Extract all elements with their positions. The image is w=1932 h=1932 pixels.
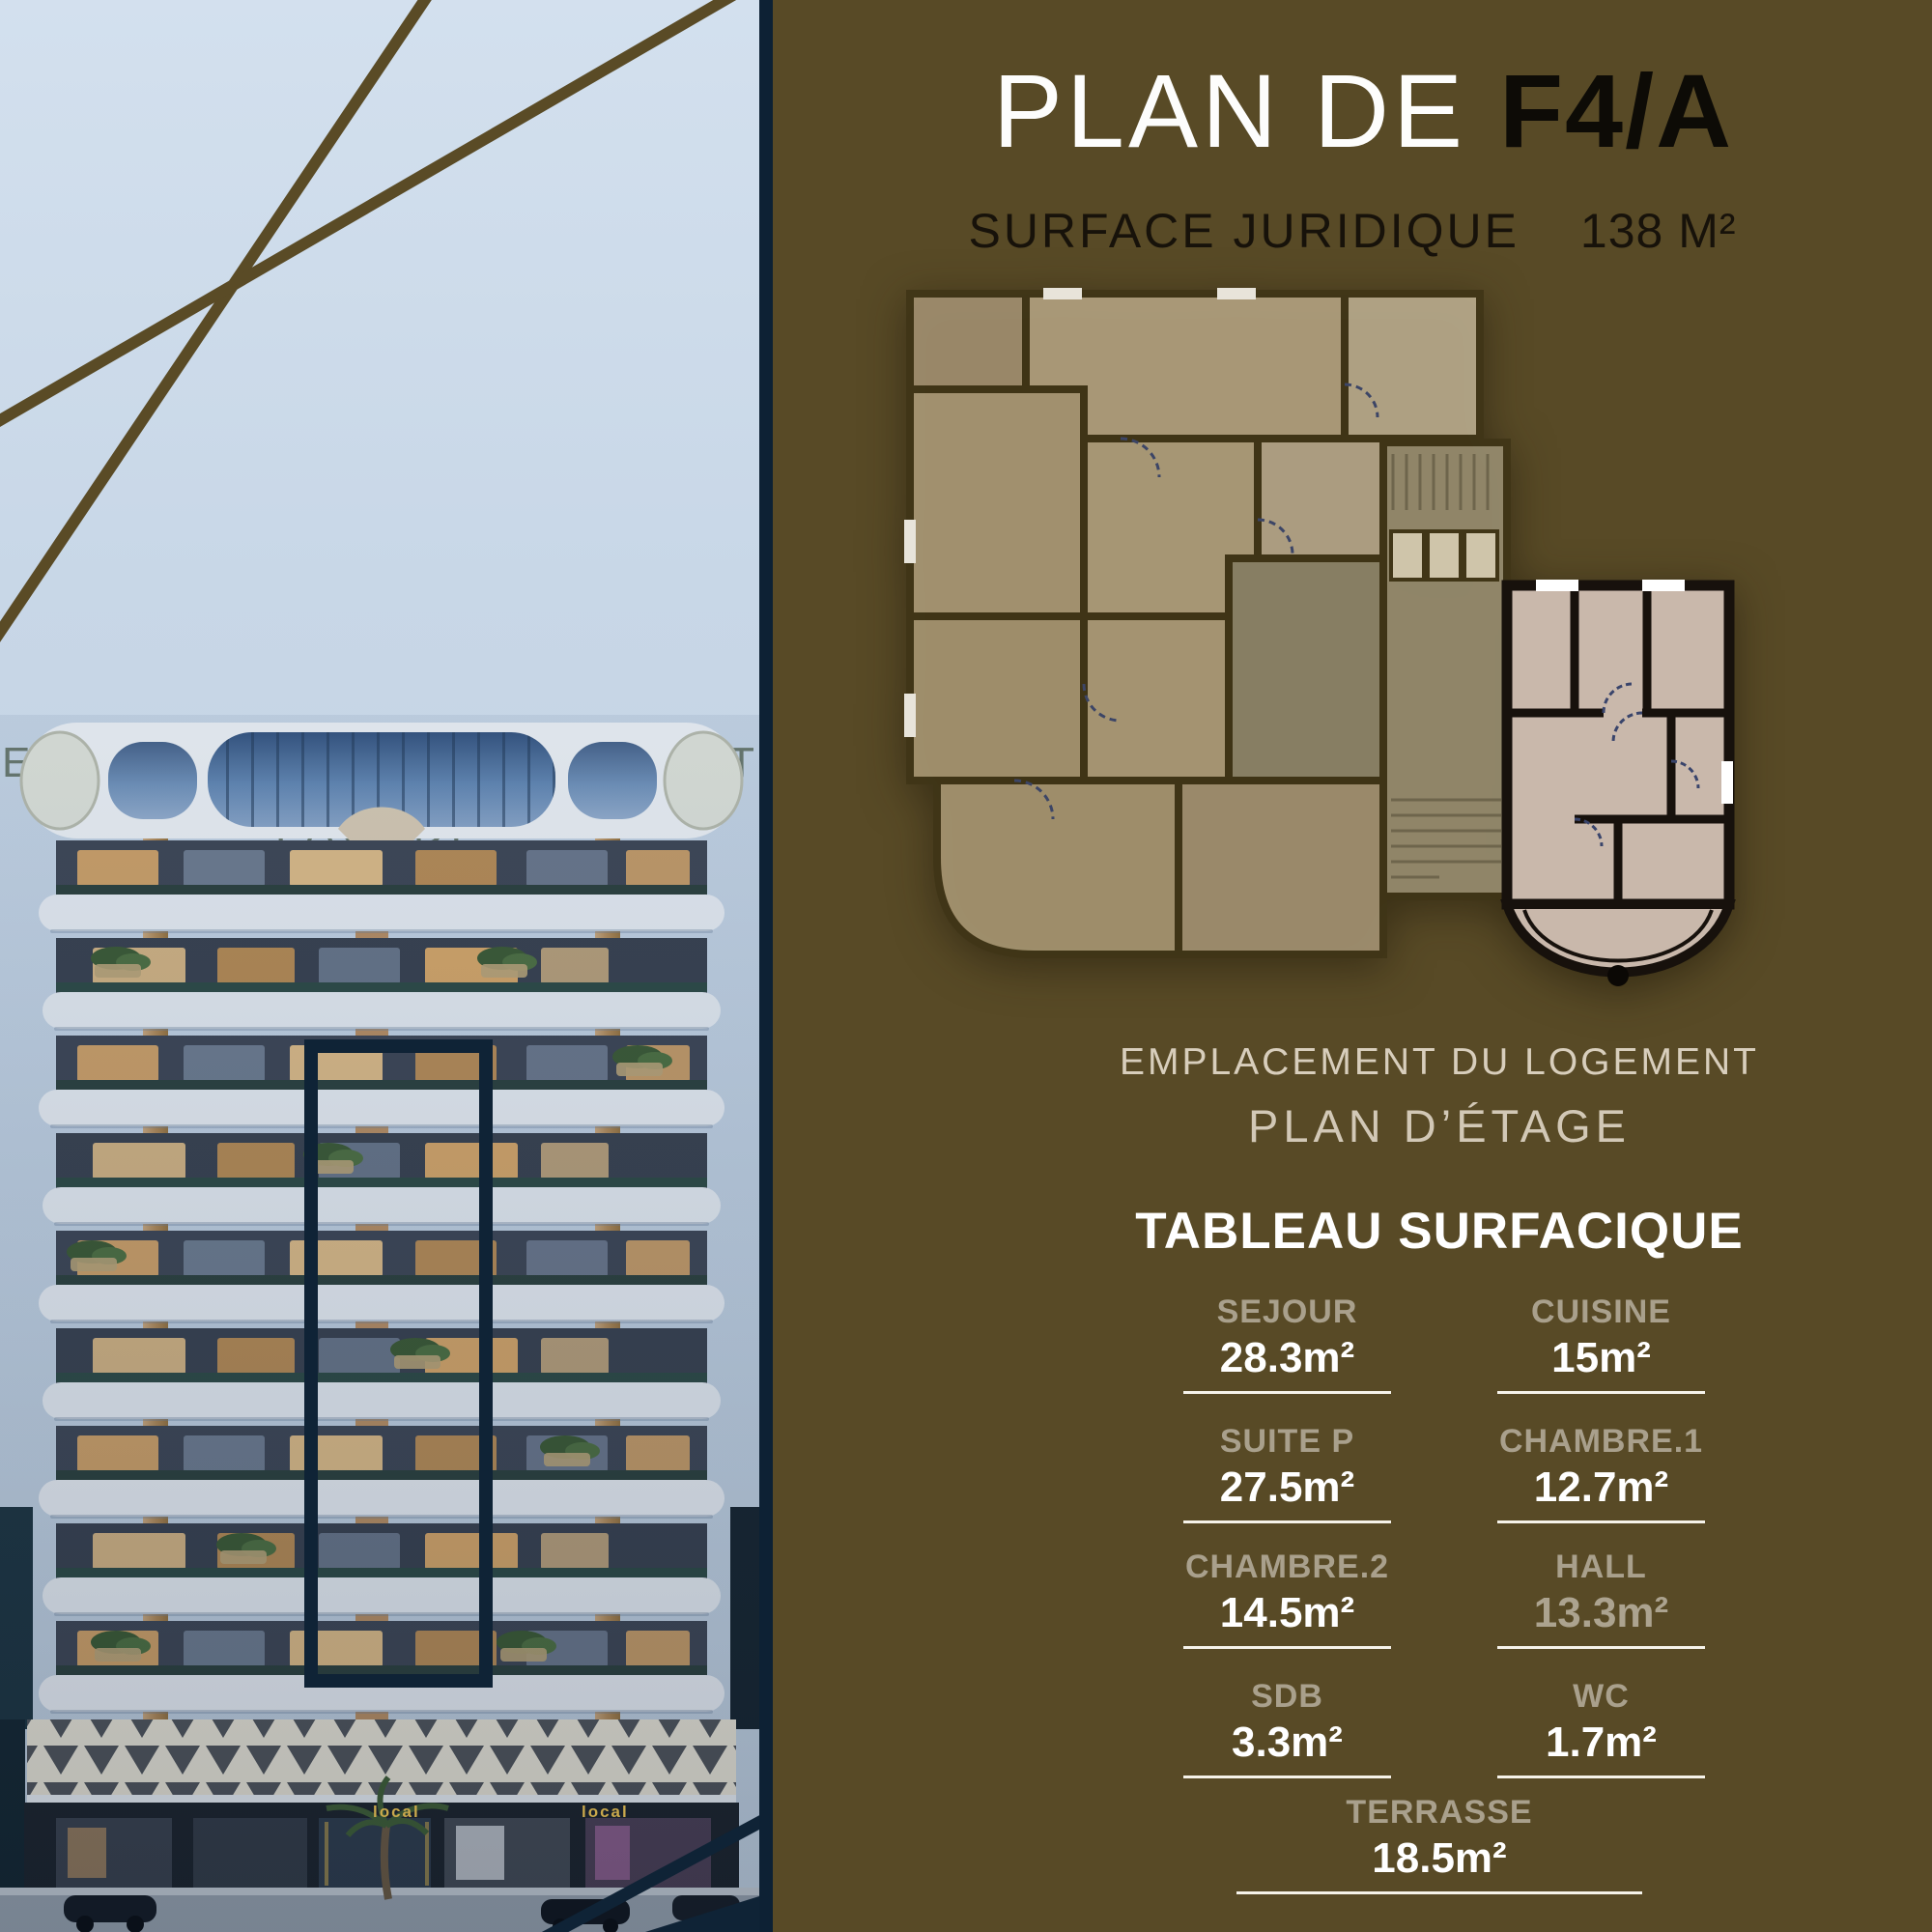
room-cell-hall: HALL 13.3m² bbox=[1435, 1548, 1768, 1649]
plan-caption-line2: PLAN D’ÉTAGE bbox=[918, 1099, 1932, 1152]
plan-door-dot bbox=[1607, 965, 1629, 986]
room-name: TERRASSE bbox=[1236, 1793, 1642, 1832]
plan-panel: PLAN DE F4/A SURFACE JURIDIQUE 138 M² bbox=[773, 0, 1932, 1932]
underline bbox=[1497, 1520, 1705, 1523]
room-name: CUISINE bbox=[1435, 1293, 1768, 1331]
room-area: 1.7m² bbox=[1435, 1718, 1768, 1768]
room-name: SEJOUR bbox=[1121, 1293, 1454, 1331]
underline bbox=[1497, 1646, 1705, 1649]
room-name: SDB bbox=[1121, 1677, 1454, 1716]
unit-window bbox=[1536, 580, 1578, 591]
room-cell-sejour: SEJOUR 28.3m² bbox=[1121, 1293, 1454, 1394]
room-name: CHAMBRE.1 bbox=[1435, 1422, 1768, 1461]
room-area: 14.5m² bbox=[1121, 1588, 1454, 1638]
underline bbox=[1183, 1520, 1391, 1523]
room-area: 18.5m² bbox=[1236, 1833, 1642, 1884]
navy-corner-wedge bbox=[614, 1891, 761, 1932]
room-name: HALL bbox=[1435, 1548, 1768, 1586]
room-cell-sdb: SDB 3.3m² bbox=[1121, 1677, 1454, 1778]
gold-diagonal-line bbox=[0, 0, 738, 427]
room-name: WC bbox=[1435, 1677, 1768, 1716]
page-title-prefix: PLAN DE bbox=[993, 52, 1499, 169]
room-cell-chambre-1: CHAMBRE.1 12.7m² bbox=[1435, 1422, 1768, 1523]
room-name: CHAMBRE.2 bbox=[1121, 1548, 1454, 1586]
unit-window bbox=[1642, 580, 1685, 591]
surface-value: 138 M² bbox=[1580, 204, 1737, 258]
underline bbox=[1236, 1891, 1642, 1894]
room-area: 12.7m² bbox=[1435, 1463, 1768, 1513]
room-cell-chambre-2: CHAMBRE.2 14.5m² bbox=[1121, 1548, 1454, 1649]
floor-plan-unit-f4a bbox=[1507, 580, 1733, 986]
room-area: 3.3m² bbox=[1121, 1718, 1454, 1768]
room-cell-terrasse: TERRASSE 18.5m² bbox=[1236, 1793, 1642, 1894]
surface-line: SURFACE JURIDIQUE 138 M² bbox=[773, 203, 1932, 259]
room-cell-wc: WC 1.7m² bbox=[1435, 1677, 1768, 1778]
room-area: 15m² bbox=[1435, 1333, 1768, 1383]
surface-label: SURFACE JURIDIQUE bbox=[968, 204, 1520, 258]
underline bbox=[1183, 1391, 1391, 1394]
underline bbox=[1497, 1391, 1705, 1394]
plan-caption: EMPLACEMENT DU LOGEMENT PLAN D’ÉTAGE bbox=[918, 1041, 1932, 1152]
floor-plan bbox=[898, 278, 1748, 998]
room-area: 28.3m² bbox=[1121, 1333, 1454, 1383]
page-title-unit: F4/A bbox=[1499, 52, 1733, 169]
room-cell-cuisine: CUISINE 15m² bbox=[1435, 1293, 1768, 1394]
brochure-page: EMPLACEMENT DU LOGEMENT FAÇADE bbox=[0, 0, 1932, 1932]
room-name: SUITE P bbox=[1121, 1422, 1454, 1461]
facade-unit-highlight-rect bbox=[311, 1046, 486, 1681]
underline bbox=[1183, 1646, 1391, 1649]
storefront-sign: local bbox=[373, 1803, 420, 1822]
floor-plan-building-mass bbox=[910, 294, 1507, 954]
page-title: PLAN DE F4/A bbox=[773, 50, 1932, 171]
surface-table-title: TABLEAU SURFACIQUE bbox=[918, 1202, 1932, 1261]
facade-panel: EMPLACEMENT DU LOGEMENT FAÇADE bbox=[0, 0, 761, 1932]
underline bbox=[1497, 1776, 1705, 1778]
underline bbox=[1183, 1776, 1391, 1778]
storefront-sign: local bbox=[582, 1803, 629, 1822]
room-cell-suite-p: SUITE P 27.5m² bbox=[1121, 1422, 1454, 1523]
room-area: 27.5m² bbox=[1121, 1463, 1454, 1513]
plan-caption-line1: EMPLACEMENT DU LOGEMENT bbox=[1120, 1041, 1759, 1083]
unit-window bbox=[1721, 761, 1733, 804]
facade-overlay-lines bbox=[0, 0, 761, 1932]
gold-diagonal-line bbox=[0, 0, 430, 649]
panel-divider bbox=[759, 0, 773, 1932]
room-area: 13.3m² bbox=[1435, 1588, 1768, 1638]
